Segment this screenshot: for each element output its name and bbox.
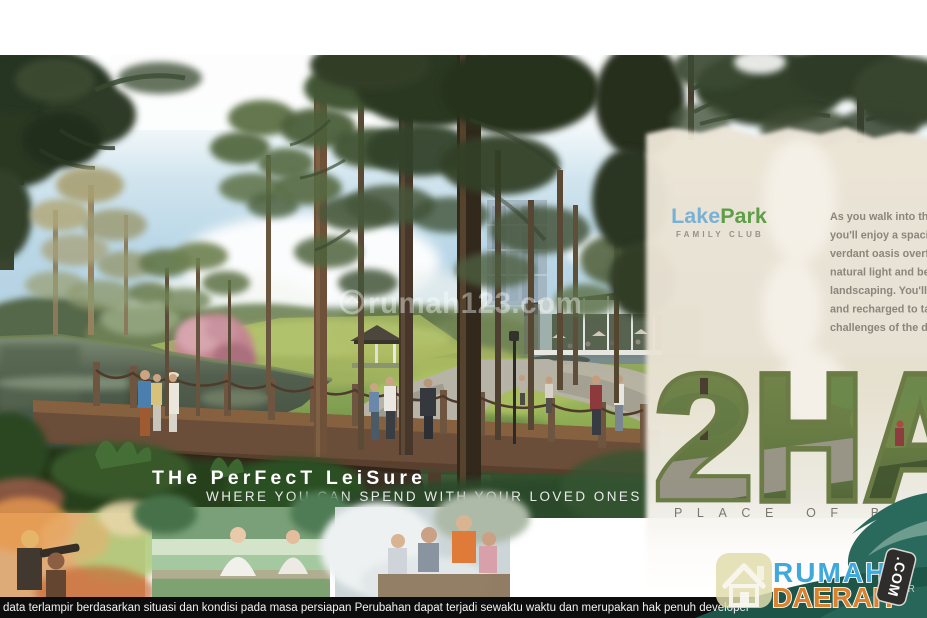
svg-text:LakePark: LakePark	[671, 204, 767, 228]
svg-text:verdant oasis overflow: verdant oasis overflow	[830, 248, 927, 260]
svg-text:DAERAH: DAERAH	[772, 582, 893, 613]
svg-text:natural light and beau: natural light and beau	[830, 267, 927, 279]
svg-text:As you walk into the L: As you walk into the L	[830, 211, 927, 223]
svg-text:landscaping. You'll fee: landscaping. You'll fee	[830, 285, 927, 297]
svg-text:and recharged to take: and recharged to take	[830, 304, 927, 316]
svg-text:you'll enjoy a spacious: you'll enjoy a spacious	[830, 230, 927, 242]
svg-text:WHERE YOU CAN SPEND WITH YOUR: WHERE YOU CAN SPEND WITH YOUR LOVED ONES	[206, 489, 642, 504]
svg-text:challenges of the day: challenges of the day	[830, 322, 927, 334]
svg-text:THe PerFecT LeiSure: THe PerFecT LeiSure	[152, 467, 426, 489]
svg-text:data terlampir berdasarkan sit: data terlampir berdasarkan situasi dan k…	[3, 602, 750, 614]
svg-text:FAMILY CLUB: FAMILY CLUB	[676, 230, 764, 239]
svg-text:rumah123.com: rumah123.com	[368, 287, 582, 320]
